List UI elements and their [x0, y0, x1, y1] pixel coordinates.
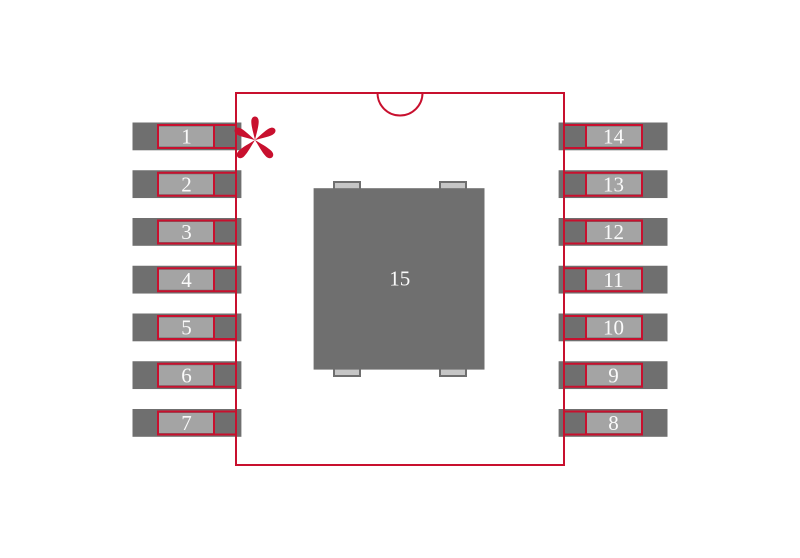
svg-text:15: 15: [389, 267, 410, 291]
svg-text:2: 2: [181, 172, 192, 196]
svg-text:10: 10: [603, 316, 624, 340]
svg-text:8: 8: [608, 411, 619, 435]
svg-text:14: 14: [603, 125, 625, 149]
svg-text:4: 4: [181, 268, 192, 292]
svg-text:5: 5: [181, 316, 192, 340]
svg-text:13: 13: [603, 172, 624, 196]
svg-text:12: 12: [603, 220, 624, 244]
svg-text:1: 1: [181, 125, 192, 149]
svg-text:6: 6: [181, 363, 192, 387]
svg-text:7: 7: [181, 411, 192, 435]
svg-text:9: 9: [608, 363, 619, 387]
svg-text:11: 11: [603, 268, 623, 292]
svg-text:3: 3: [181, 220, 192, 244]
